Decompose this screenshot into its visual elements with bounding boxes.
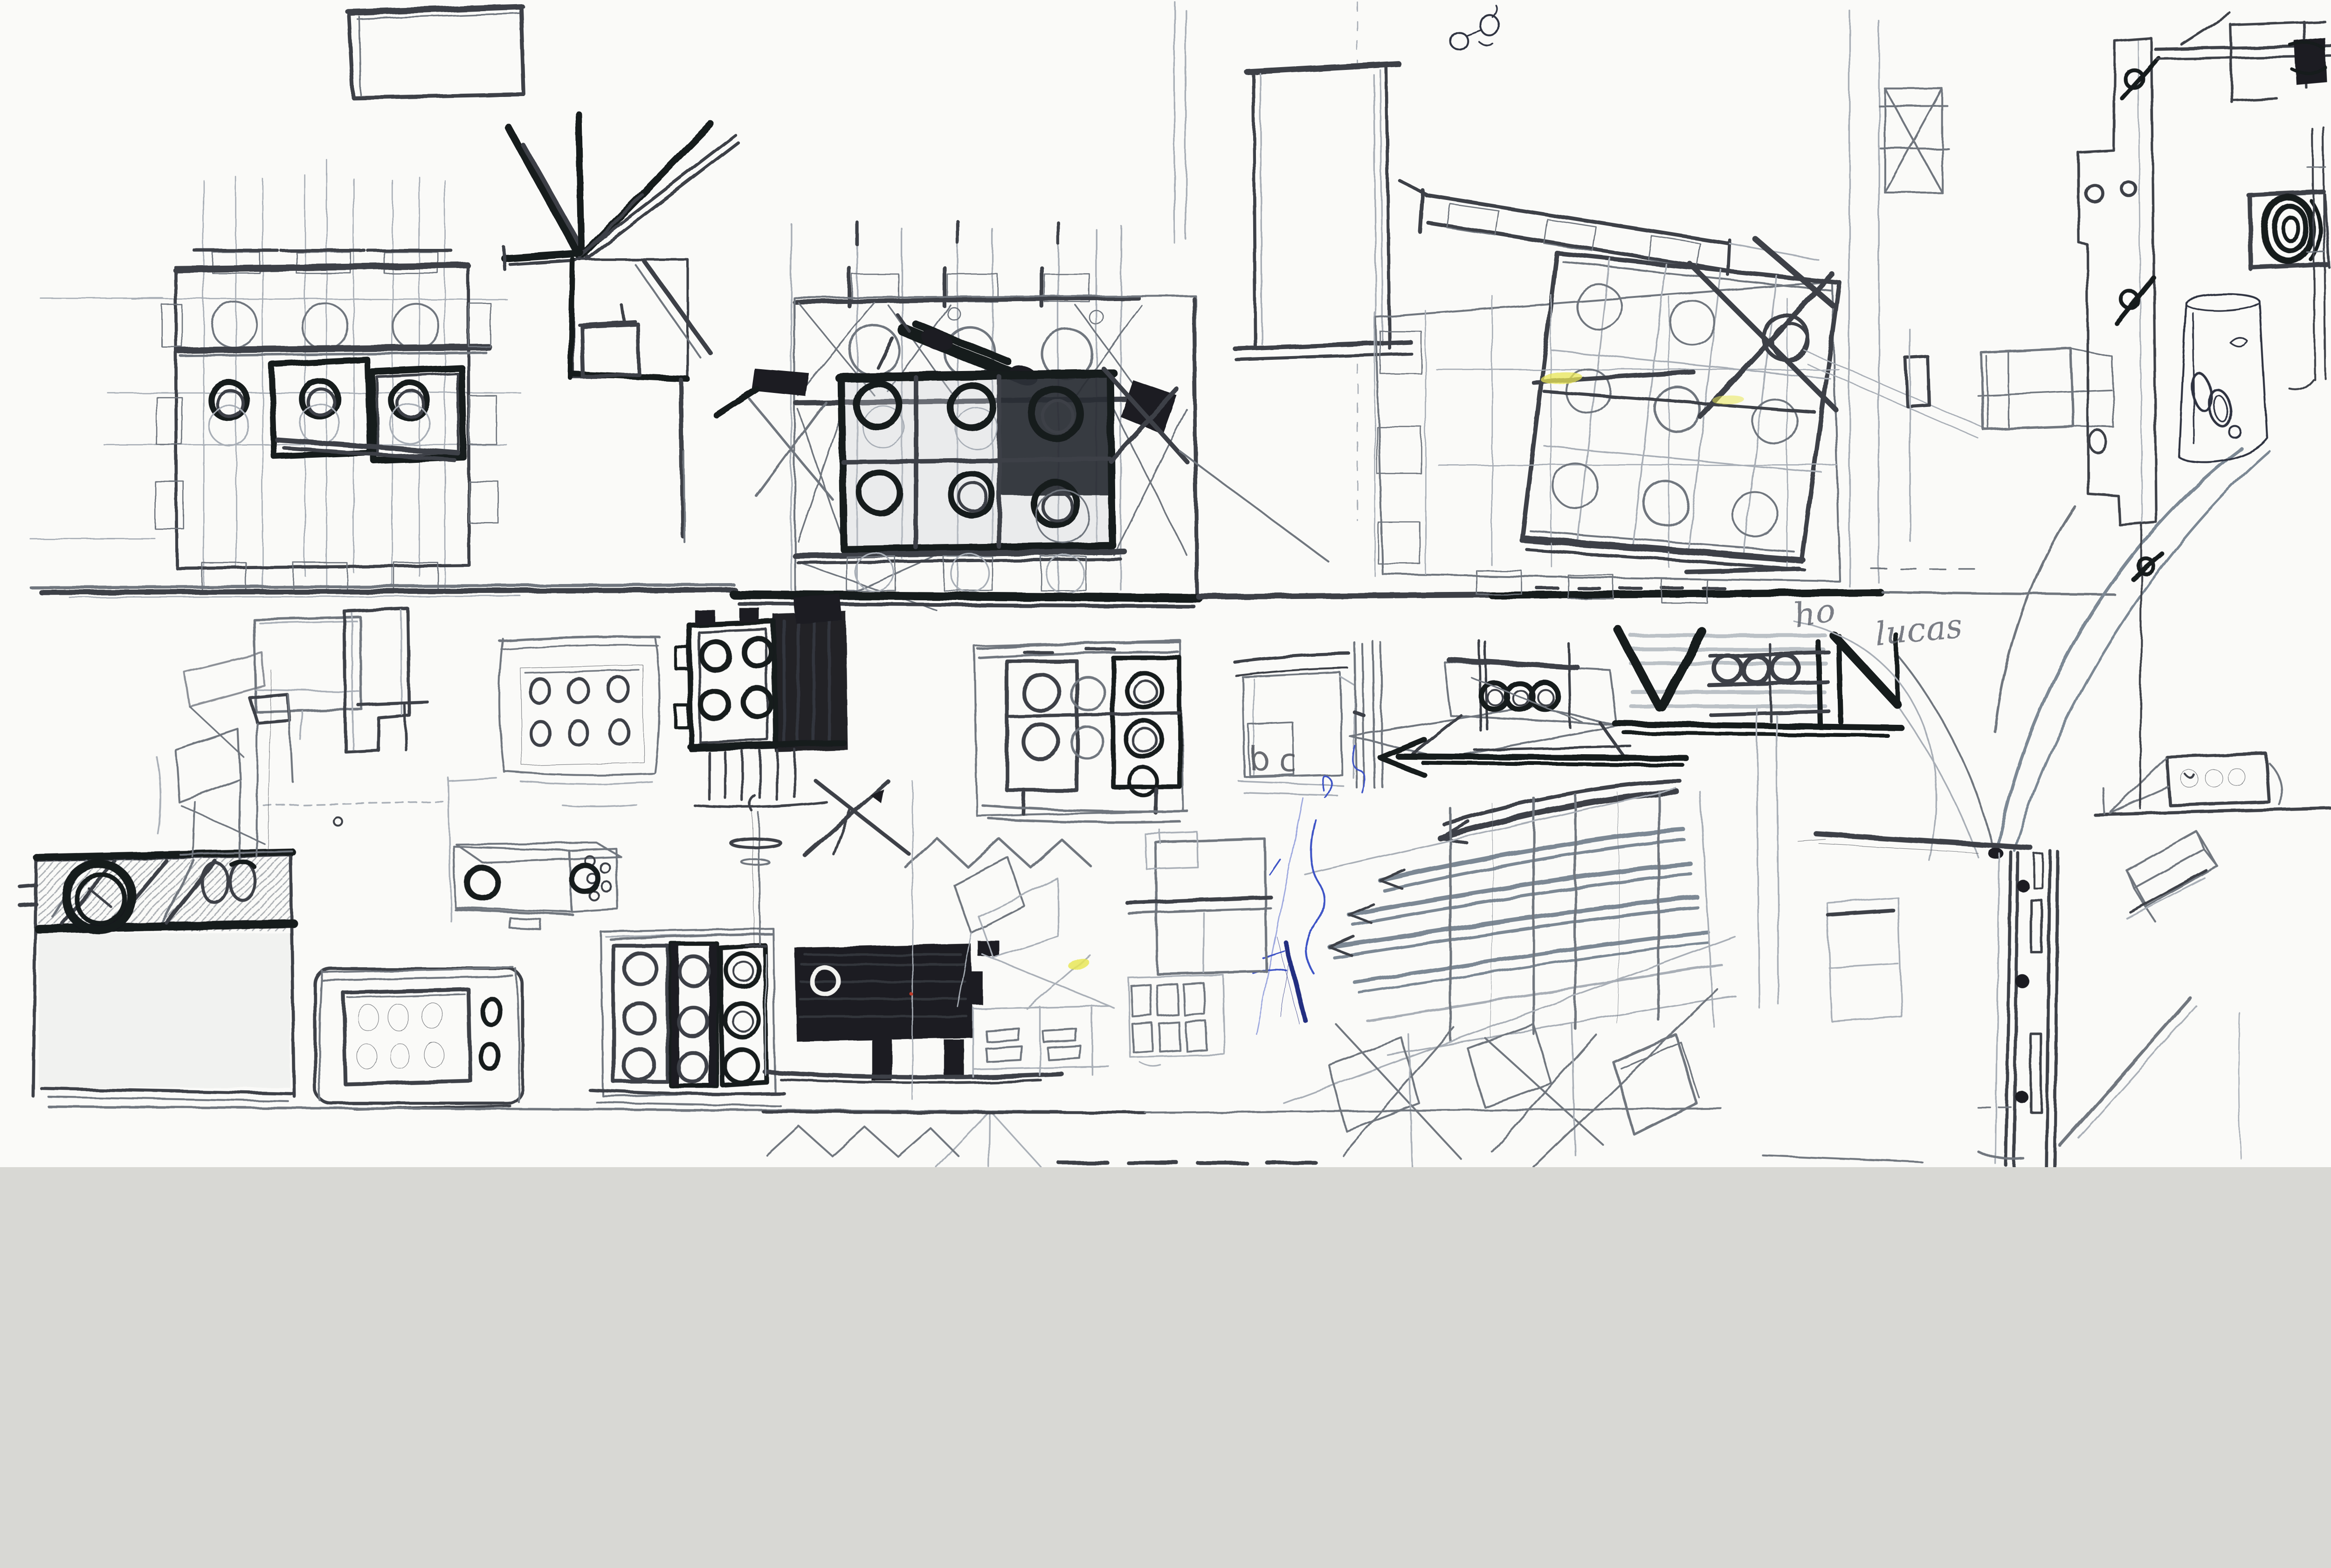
glasses-doodle bbox=[1450, 5, 1498, 49]
house-study bbox=[1127, 830, 1270, 974]
handwritten-word-2: lucas bbox=[1873, 606, 1965, 654]
handwritten-word-1: ho bbox=[1791, 591, 1838, 635]
baseline bbox=[48, 1107, 1721, 1163]
handwritten-letter-b: b bbox=[1249, 740, 1269, 777]
hatched-chest bbox=[454, 843, 621, 929]
window-sheet bbox=[1128, 975, 1225, 1066]
v-truss-unit: ho lucas bbox=[1615, 591, 1965, 860]
portal-frame bbox=[1174, 2, 1411, 521]
corner-frame bbox=[2230, 21, 2327, 103]
hatched-brick bbox=[2126, 831, 2218, 921]
chair-sketch bbox=[157, 653, 292, 859]
control-panel bbox=[315, 968, 523, 1109]
speaker-cabinet bbox=[590, 928, 784, 1106]
top-frame-sketch bbox=[347, 6, 524, 97]
sketch-canvas: b c ho lucas bbox=[0, 0, 2331, 1167]
strut-x bbox=[805, 781, 909, 855]
coil-knob bbox=[2248, 192, 2329, 269]
ink-canister bbox=[2179, 294, 2267, 462]
central-grid-structure bbox=[717, 221, 1329, 611]
step-bracket bbox=[344, 608, 428, 751]
fan-column-sketch bbox=[504, 115, 738, 542]
swoosh-ramp bbox=[1867, 448, 2269, 859]
kite-frames bbox=[910, 781, 1114, 1100]
scanned-sketch-page: b c ho lucas bbox=[0, 0, 2331, 1167]
perspective-cube bbox=[1906, 330, 2114, 541]
dark-tv bbox=[765, 941, 1062, 1083]
shelf-speaker-strip bbox=[2095, 754, 2331, 815]
zigzag-row bbox=[906, 832, 1198, 869]
bc-box: b c bbox=[1234, 641, 1383, 796]
blue-pen-marks bbox=[1253, 746, 1365, 1034]
gridded-plan-left bbox=[30, 159, 521, 592]
ovals-box bbox=[499, 637, 660, 806]
dark-marker-box bbox=[675, 594, 848, 807]
column-speaker-box bbox=[974, 640, 1187, 822]
tilted-grid-plan bbox=[1375, 10, 1985, 603]
handwritten-letter-c: c bbox=[1279, 742, 1297, 779]
big-box-left bbox=[20, 852, 294, 1101]
